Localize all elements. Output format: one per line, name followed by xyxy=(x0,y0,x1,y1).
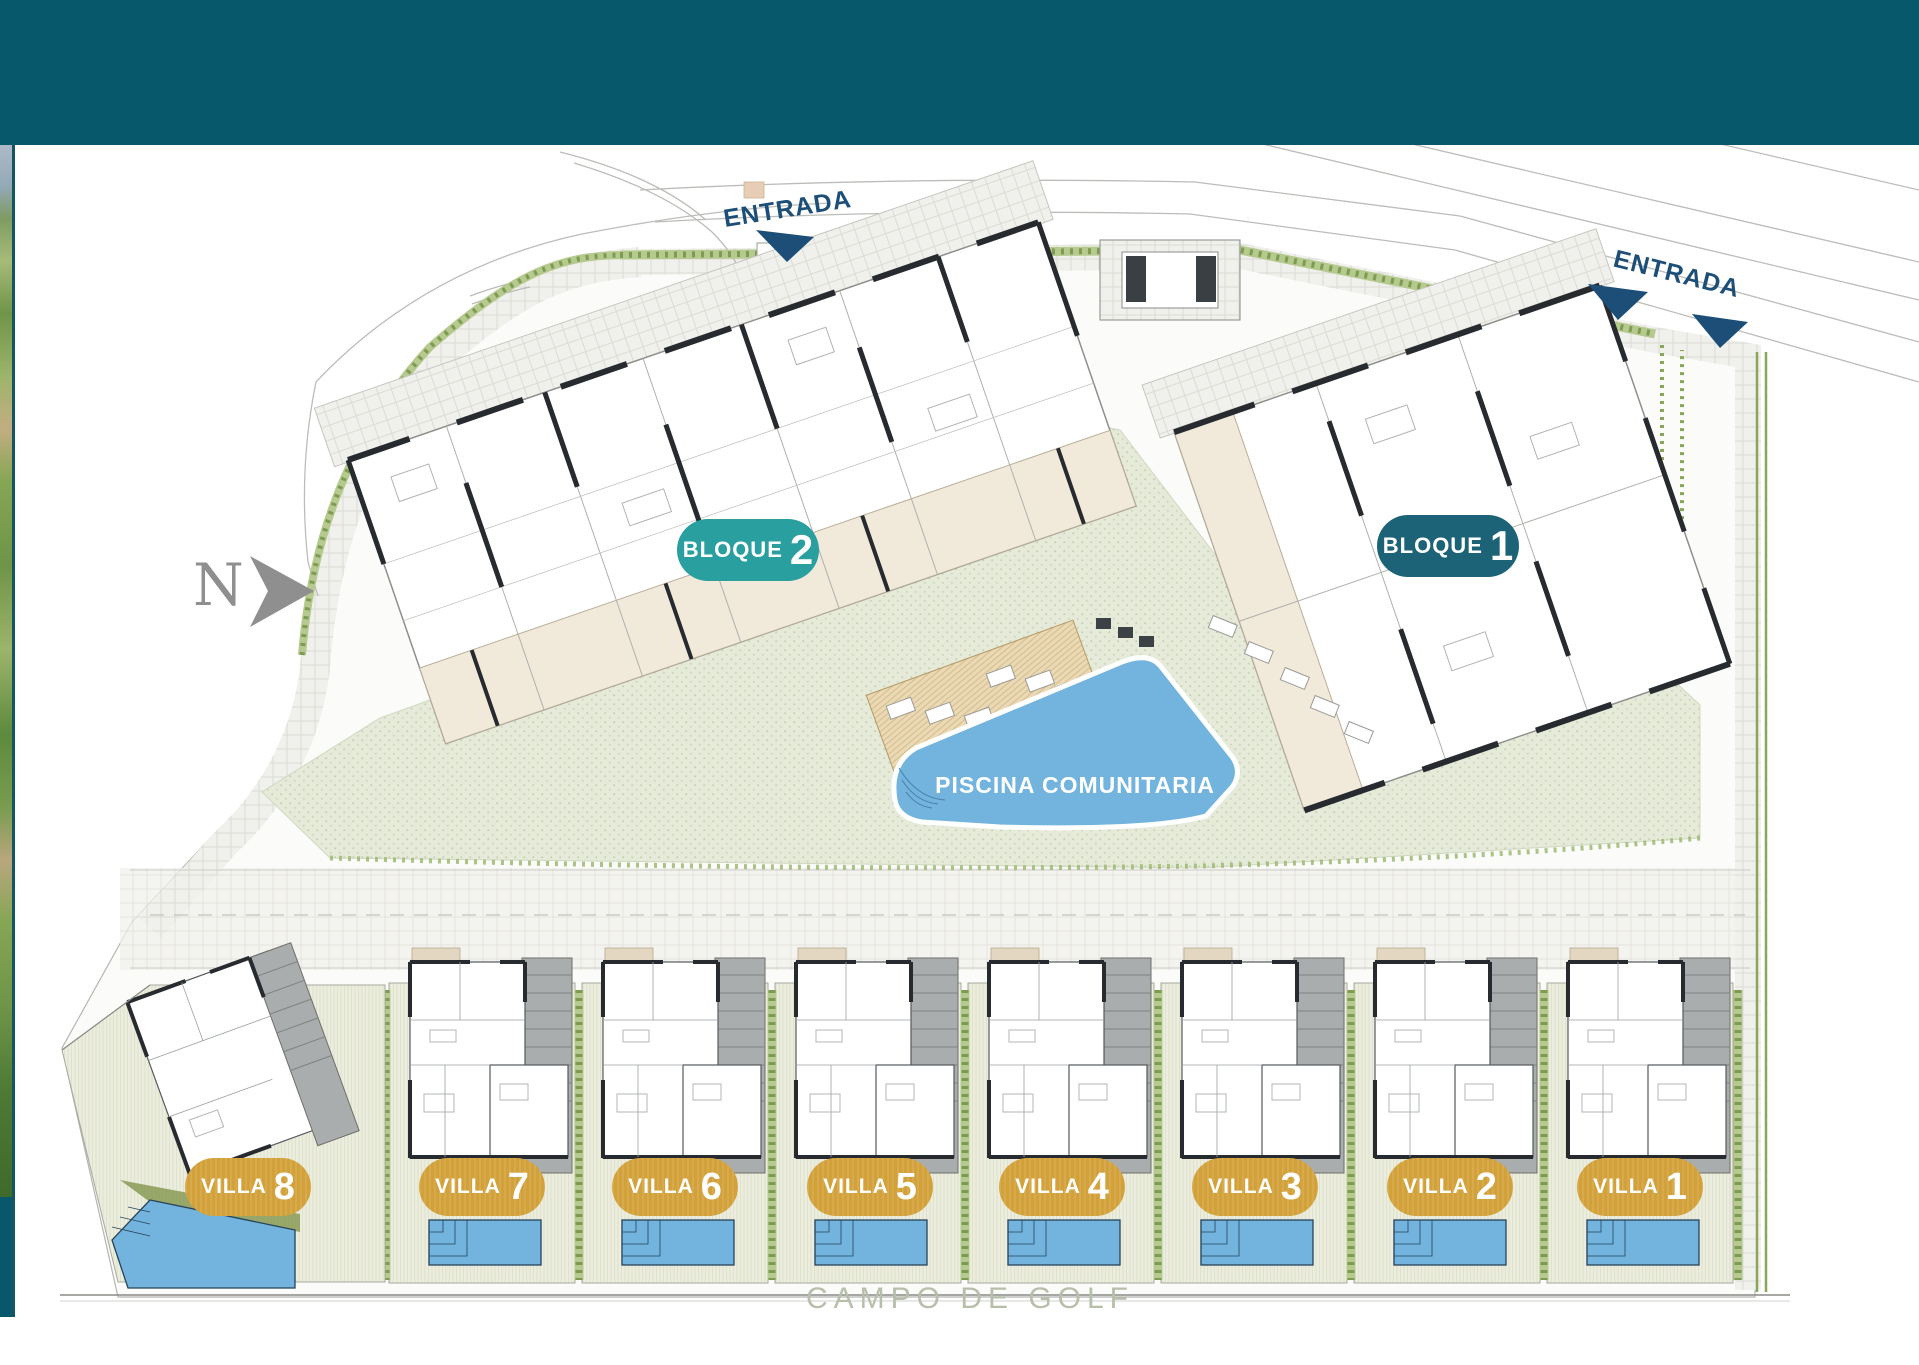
villa-8-number: 8 xyxy=(274,1168,295,1206)
bloque-1-badge[interactable]: BLOQUE 1 xyxy=(1377,515,1519,577)
villa-7-label: VILLA xyxy=(435,1175,501,1199)
villa-4-number: 4 xyxy=(1088,1168,1109,1206)
villa-5-label: VILLA xyxy=(823,1175,889,1199)
villa-8-badge[interactable]: VILLA 8 xyxy=(185,1158,311,1216)
villa-6-number: 6 xyxy=(701,1168,722,1206)
villa-2-badge[interactable]: VILLA 2 xyxy=(1387,1158,1513,1216)
golf-course-label: CAMPO DE GOLF xyxy=(795,1282,1145,1316)
villa-5-badge[interactable]: VILLA 5 xyxy=(807,1158,933,1216)
villa-7-badge[interactable]: VILLA 7 xyxy=(419,1158,545,1216)
north-letter: N xyxy=(193,556,244,614)
villa-2-number: 2 xyxy=(1476,1168,1497,1206)
villa-1-badge[interactable]: VILLA 1 xyxy=(1577,1158,1703,1216)
villa-1-number: 1 xyxy=(1666,1168,1687,1206)
bloque-1-number: 1 xyxy=(1490,525,1513,567)
villa-2-label: VILLA xyxy=(1403,1175,1469,1199)
bloque-2-label: BLOQUE xyxy=(683,537,783,563)
header-bar xyxy=(0,0,1919,145)
villa-5-number: 5 xyxy=(896,1168,917,1206)
bloque-2-number: 2 xyxy=(790,529,813,571)
villa-6-badge[interactable]: VILLA 6 xyxy=(612,1158,738,1216)
villa-7-number: 7 xyxy=(508,1168,529,1206)
villa-4-label: VILLA xyxy=(1015,1175,1081,1199)
villa-3-number: 3 xyxy=(1281,1168,1302,1206)
villa-6-label: VILLA xyxy=(628,1175,694,1199)
bloque-1-label: BLOQUE xyxy=(1383,533,1483,559)
villa-3-label: VILLA xyxy=(1208,1175,1274,1199)
utility-structure xyxy=(1100,240,1240,320)
villa-3-badge[interactable]: VILLA 3 xyxy=(1192,1158,1318,1216)
side-photo-strip xyxy=(0,145,12,1197)
villa-8-label: VILLA xyxy=(201,1175,267,1199)
side-divider-line xyxy=(12,145,15,1317)
villa-1-label: VILLA xyxy=(1593,1175,1659,1199)
pool-label: PISCINA COMUNITARIA xyxy=(930,772,1220,799)
bloque-2-badge[interactable]: BLOQUE 2 xyxy=(677,519,819,581)
villa-4-badge[interactable]: VILLA 4 xyxy=(999,1158,1125,1216)
